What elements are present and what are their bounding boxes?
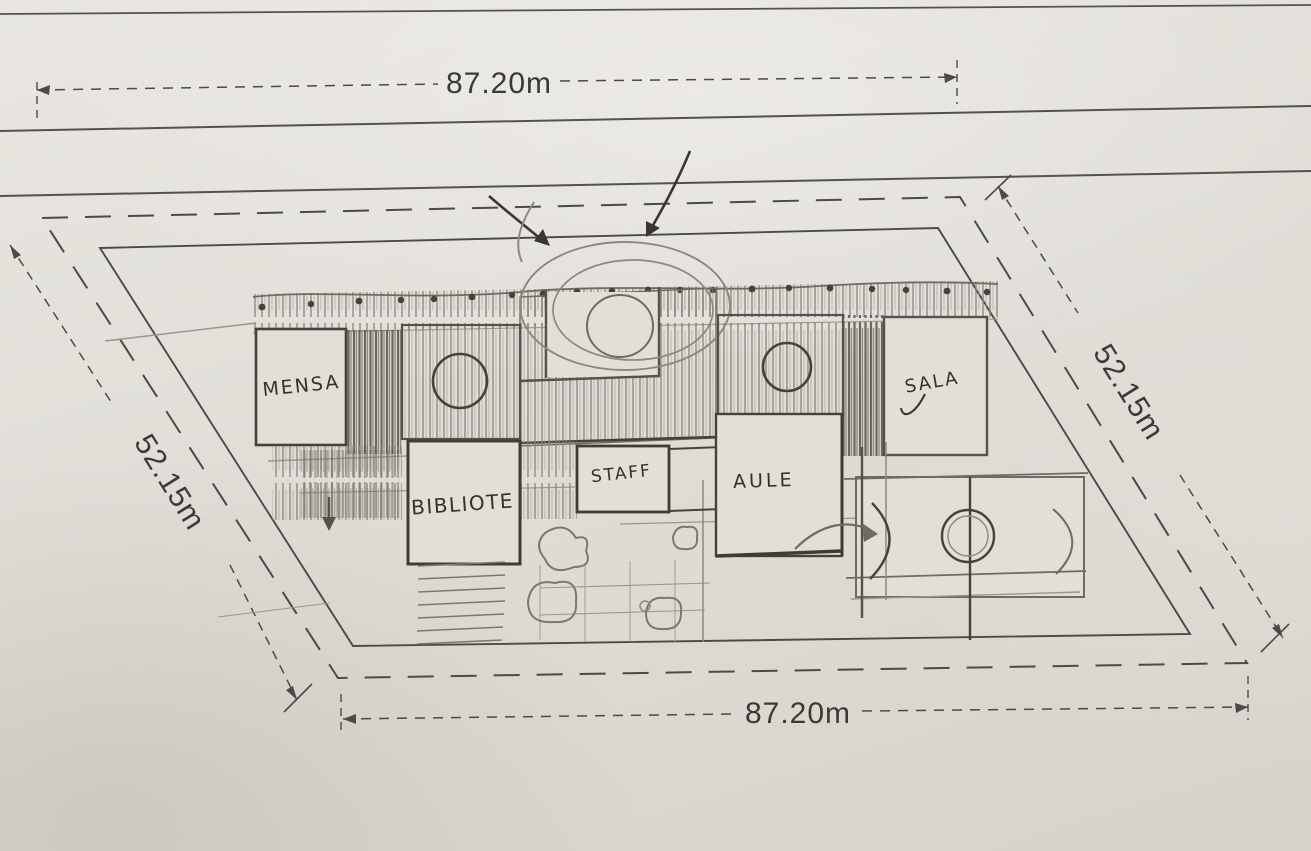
dim-arrow-icon [1235, 703, 1248, 713]
dimension-top-label: 87.20m [446, 67, 552, 100]
road-edge-bottom [0, 171, 1311, 196]
road-edge-far [0, 5, 1311, 14]
dim-arrow-icon [286, 686, 297, 700]
arrowhead-icon [322, 517, 336, 531]
hatched-strip [841, 315, 884, 456]
dim-arrow-icon [944, 73, 957, 83]
room-with-circle-right [718, 315, 843, 417]
dimension-left-label: 52.15m [127, 429, 211, 536]
building-sketch: MENSA SALA BIBLIOTE [105, 151, 1088, 644]
room-biblioteca: BIBLIOTE [408, 441, 520, 564]
dim-arrow-icon [37, 85, 50, 95]
road-edge-top [0, 106, 1311, 131]
room-aule-label: AULE [733, 469, 795, 493]
entrance-arrow-icon [652, 151, 690, 227]
room-mensa: MENSA [256, 329, 346, 445]
dim-arrow-icon [10, 245, 21, 259]
dim-arrow-icon [343, 714, 356, 724]
dim-arrow-icon [998, 186, 1009, 200]
site-plan-sketch: 87.20m 87.20m 52.15m 52.15m [0, 0, 1311, 851]
dim-tick [284, 684, 312, 712]
hatched-strip [521, 441, 577, 519]
hatched-strip [346, 330, 402, 454]
room-with-circle-left [402, 325, 520, 439]
stairs [417, 562, 505, 644]
hatched-block-below-mensa [300, 450, 400, 518]
dimension-bottom: 87.20m [341, 676, 1248, 733]
room-staff: STAFF [577, 446, 722, 512]
dimension-right-label: 52.15m [1086, 339, 1170, 446]
room-sala: SALA [884, 317, 987, 455]
room-bottom-right [844, 442, 1088, 640]
paper-photo: 87.20m 87.20m 52.15m 52.15m [0, 0, 1311, 851]
entrance-hall [520, 242, 730, 446]
tree-blobs [528, 527, 697, 629]
dimension-bottom-label: 87.20m [745, 697, 851, 730]
road-lines [0, 5, 1311, 196]
room-aule: AULE [716, 414, 842, 556]
